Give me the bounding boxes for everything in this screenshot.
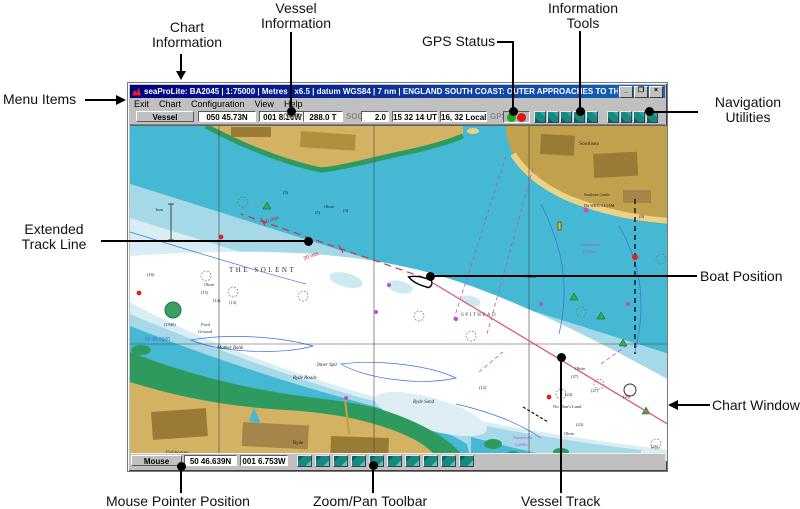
information-tool-button[interactable] [547,111,559,123]
land-detail [231,127,271,137]
land-detail [593,152,638,178]
annotation-menu-items: Menu Items [3,92,76,107]
annotation-gps-status: GPS Status [422,34,498,49]
information-tools-group [534,111,598,123]
depth: (24) [623,394,631,399]
label-obstn: Obstn [564,431,574,436]
arrowhead [668,400,678,410]
annotation-line [579,31,581,109]
annotation-vessel-track: Vessel Track [521,494,600,509]
zoom-pan-button[interactable] [405,455,420,467]
zoom-pan-button[interactable] [333,455,348,467]
menu-item-view[interactable]: View [255,99,274,109]
annotation-line [290,32,292,109]
label-the-solent: THE SOLENT [229,266,296,274]
annotation-dot [177,462,186,471]
menu-item-configuration[interactable]: Configuration [191,99,245,109]
islet-west [131,345,151,355]
information-tool-button[interactable] [586,111,598,123]
depth: (16) [147,272,155,277]
arrowhead [176,71,186,80]
label-southsea: Southsea [579,141,599,147]
zoom-pan-button[interactable] [315,455,330,467]
depth: (27) [591,388,599,393]
app-logo-icon [132,88,141,96]
depth: (12) [479,385,487,390]
sand-islet [467,128,479,134]
information-tool-button[interactable] [560,111,572,123]
label-obstn: Obstn [204,282,214,287]
label-no-mans-land: No Man's Land [553,404,582,409]
label-cables-south-1: Numerous [512,435,532,440]
label-ford-ground-1: Ford [200,322,211,327]
navigation-utility-button[interactable] [607,111,619,123]
depth: (24) [565,392,573,397]
vessel-label: Vessel [136,111,194,122]
utc-time-field[interactable]: 15 32 14 UT [392,111,438,122]
depth: (8) [639,214,645,219]
zoom-pan-button[interactable] [441,455,456,467]
local-time-field[interactable]: 16, 32 Local [440,111,487,122]
annotation-line [560,360,562,493]
application-window: seaProLite: BA2045 | 1:75000 | Metres | … [127,82,668,472]
arrowhead [116,95,126,105]
navigation-utility-button[interactable] [633,111,645,123]
speed-field[interactable]: 2.0 [361,111,389,122]
restore-button[interactable]: ❐ [634,86,648,98]
chart-canvas[interactable]: 50 45.0000 1nm [130,126,667,461]
zoom-pan-button[interactable] [351,455,366,467]
annotation-boat-position: Boat Position [700,269,783,284]
zoom-pan-toolbar [297,455,474,467]
land-detail [623,190,651,203]
label-ford-ground-2: Ground [198,329,213,334]
annotation-line [180,54,182,72]
depth: (15) [201,290,209,295]
title-bar[interactable]: seaProLite: BA2045 | 1:75000 | Metres | … [130,85,665,98]
annotation-dot [369,461,378,470]
annotation-line [677,404,710,406]
red-buoy [632,254,638,260]
annotation-line [512,41,514,109]
label-mother-bank: Mother Bank [216,346,244,351]
annotation-chart-information: Chart Information [140,20,234,50]
annotation-dot [645,107,654,116]
scale-label: 1nm [155,207,164,212]
annotation-dot [576,107,585,116]
annotation-zoom-pan-toolbar: Zoom/Pan Toolbar [313,494,427,509]
depth: (5) [283,190,289,195]
minimize-button[interactable]: _ [619,86,633,98]
menu-item-exit[interactable]: Exit [134,99,149,109]
label-obstn: Obstn [324,204,334,209]
annotation-line [180,469,182,493]
label-inner-spit: Inner Spit [316,363,337,368]
annotation-mouse-pointer-position: Mouse Pointer Position [106,494,250,509]
label-wreck-year: (1946) [164,322,176,327]
zoom-pan-button[interactable] [297,455,312,467]
annotation-navigation-utilities: Navigation Utilities [700,95,796,125]
annotation-chart-window: Chart Window [712,398,800,413]
depth: (13) [229,300,237,305]
annotation-dot [557,353,566,362]
label-cables-south-2: Cables [515,442,528,447]
depth: (27) [571,374,579,379]
navigation-utility-button[interactable] [620,111,632,123]
annotation-line [101,240,307,242]
window-title: seaProLite: BA2045 | 1:75000 | Metres | … [144,87,618,96]
label-ryde-sand: Ryde Sand [412,400,435,405]
annotation-dot [426,272,435,281]
course-field[interactable]: 288.0 T [303,111,343,122]
cardinal-beacon [558,222,561,230]
annotation-vessel-information: Vessel Information [249,1,343,31]
information-tool-button[interactable] [534,111,546,123]
depth: (23) [576,422,584,427]
menu-bar: Exit Chart Configuration View Help [130,98,665,110]
weed-patch [484,439,502,449]
land-detail [151,408,208,440]
annotation-dot [287,107,296,116]
label-light-characteristic: Dir WRG 3.13-5M [584,203,615,208]
annotation-extended-track-line: Extended Track Line [8,222,100,252]
annotated-screenshot: seaProLite: BA2045 | 1:75000 | Metres | … [0,0,800,509]
grid-latitude-label: 50 45.0000 [145,337,170,343]
label-cables-north-2: Cables [583,249,596,254]
southsea-castle-light [584,208,589,213]
close-button[interactable]: × [649,86,663,98]
label-spithead: SPITHEAD [461,313,497,318]
label-southsea-castle: Southsea Castle [584,192,610,197]
zoom-pan-button[interactable] [387,455,402,467]
wreck-area [165,302,181,318]
annotation-line [433,275,697,277]
depth: (26) [651,444,659,449]
annotation-line [85,99,117,101]
annotation-line [372,468,374,493]
annotation-information-tools: Information Tools [537,1,629,31]
zoom-pan-button[interactable] [423,455,438,467]
menu-item-chart[interactable]: Chart [159,99,181,109]
mouse-label: Mouse [131,455,182,466]
label-ryde-roads: Ryde Roads [292,376,317,381]
depth: (5) [343,208,349,213]
label-ryde: Ryde [293,441,304,446]
mouse-latitude-field[interactable]: 50 46.639N [184,455,237,466]
status-bar: Mouse 50 46.639N 001 6.753W [130,453,665,469]
depth: (14) [213,298,221,303]
gps-alarm-light [517,113,526,122]
depth: (5) [315,210,321,215]
label-obstn: Obstn [575,366,585,371]
annotation-dot [304,237,313,246]
annotation-line [653,111,698,113]
zoom-pan-button[interactable] [459,455,474,467]
chart-window[interactable]: 50 45.0000 1nm [130,125,667,460]
vessel-latitude-field[interactable]: 050 45.73N [198,111,256,122]
mouse-longitude-field[interactable]: 001 6.753W [240,455,288,466]
land-detail [540,134,575,156]
annotation-dot [509,107,518,116]
label-cables-north-1: Numerous [580,242,600,247]
